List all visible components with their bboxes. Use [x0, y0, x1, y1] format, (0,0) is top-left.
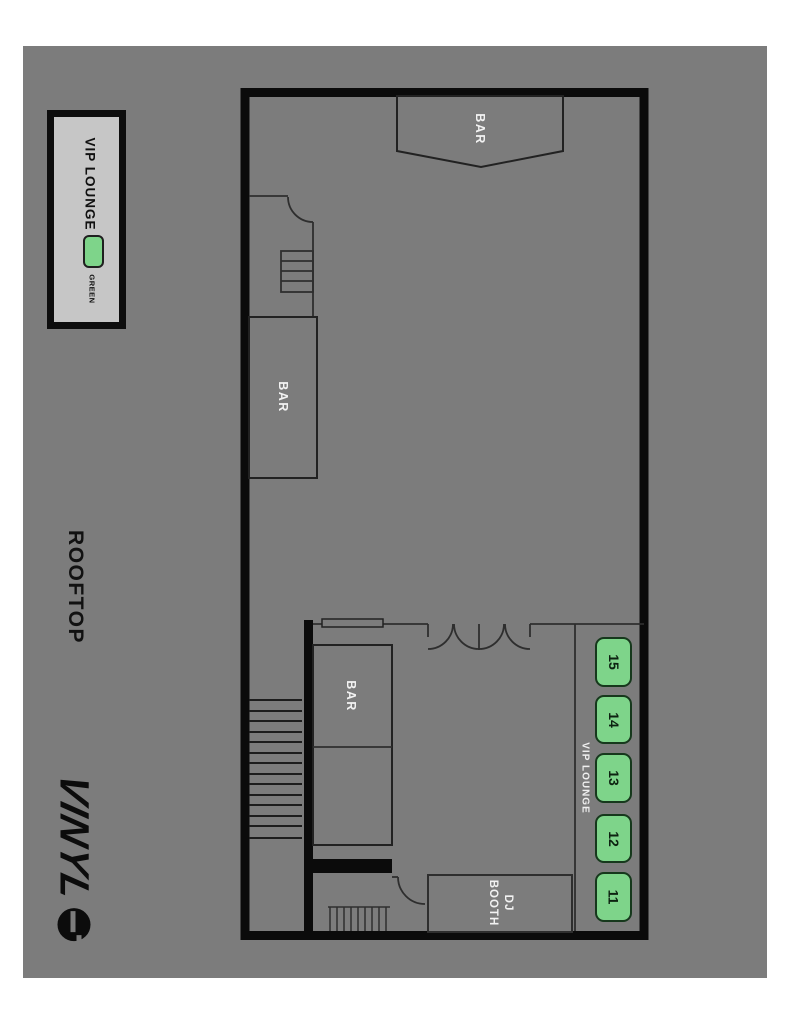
rear-door — [392, 877, 425, 904]
rear-door-arc — [398, 877, 425, 904]
stairwell-door-arc — [288, 197, 313, 222]
vip-table-11[interactable]: 11 — [595, 872, 632, 922]
main-staircase — [249, 700, 302, 838]
legend-green-swatch — [83, 235, 104, 268]
vip-lounge-strip-label: VIP LOUNGE — [580, 742, 591, 814]
vip-table-14[interactable]: 14 — [595, 695, 632, 744]
legend-swatch-label: GREEN — [88, 274, 97, 303]
vip-table-15-number: 15 — [605, 654, 621, 670]
lower-bar-counter-top — [322, 619, 383, 627]
mid-bar-label: BAR — [276, 381, 290, 413]
brand-logo-text: VINYL — [51, 769, 98, 906]
vip-table-13[interactable]: 13 — [595, 753, 632, 803]
bottom-stairs — [328, 907, 390, 931]
vip-table-14-number: 14 — [605, 712, 621, 728]
double-door-arcs — [428, 624, 453, 649]
vip-table-15[interactable]: 15 — [595, 637, 632, 687]
stairwell-room — [249, 196, 313, 317]
floorplan-page: BAR BAR BAR DJ BOOTH VIP LOUNGE ROOFTOP … — [0, 0, 791, 1024]
legend-title: VIP LOUNGE — [83, 137, 98, 230]
brand-logo: VINYL — [51, 775, 98, 941]
vip-table-11-number: 11 — [606, 890, 622, 905]
dj-booth-label: DJ BOOTH — [485, 871, 515, 935]
legend-box: VIP LOUNGE GREEN — [47, 110, 126, 329]
rear-thick-wall — [313, 859, 392, 873]
vinyl-record-icon — [58, 908, 91, 941]
lower-bar-shape — [313, 645, 392, 845]
vip-table-12-number: 12 — [605, 831, 621, 847]
top-bar-label: BAR — [473, 113, 487, 145]
vip-table-12[interactable]: 12 — [595, 814, 632, 863]
vip-table-13-number: 13 — [605, 770, 621, 786]
lower-room-thick-wall — [304, 620, 313, 936]
rooftop-floor-label: ROOFTOP — [63, 530, 87, 644]
lower-bar-label: BAR — [344, 680, 358, 712]
